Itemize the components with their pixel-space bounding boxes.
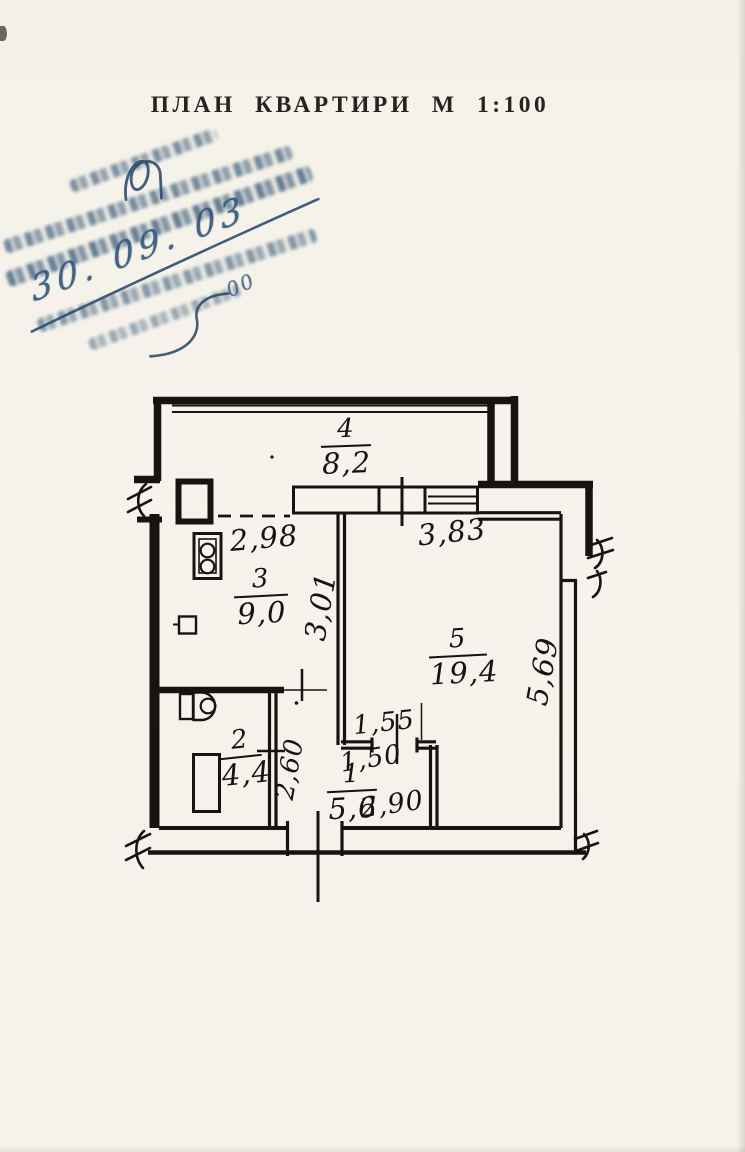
vent-icon (173, 617, 196, 634)
room-area: 9,0 (234, 596, 290, 630)
scanned-sheet: ПЛАН КВАРТИРИ М 1:100 30. 09. 03 00 (0, 0, 745, 1152)
dim-room5-width: 3,83 (413, 514, 492, 551)
room-label-5: 5 19,4 (427, 625, 488, 690)
dim-kitchen-width: 2,98 (227, 521, 301, 556)
stove-icon (194, 534, 221, 579)
room-area: 19,4 (429, 655, 489, 689)
floor-plan-drawing (0, 0, 745, 1152)
room-area: 4,4 (220, 756, 265, 791)
room-label-4: 4 8,2 (320, 415, 372, 479)
toilet-icon (180, 693, 215, 721)
room-number: 3 (232, 565, 288, 599)
dim-hall-top: 1,55 (350, 707, 418, 740)
room-label-2: 2 4,4 (217, 725, 265, 791)
room-area: 8,2 (321, 446, 372, 479)
room-number: 5 (427, 625, 487, 659)
room-number: 4 (320, 415, 371, 448)
room-label-3: 3 9,0 (232, 565, 289, 630)
bathtub-icon (194, 755, 220, 812)
